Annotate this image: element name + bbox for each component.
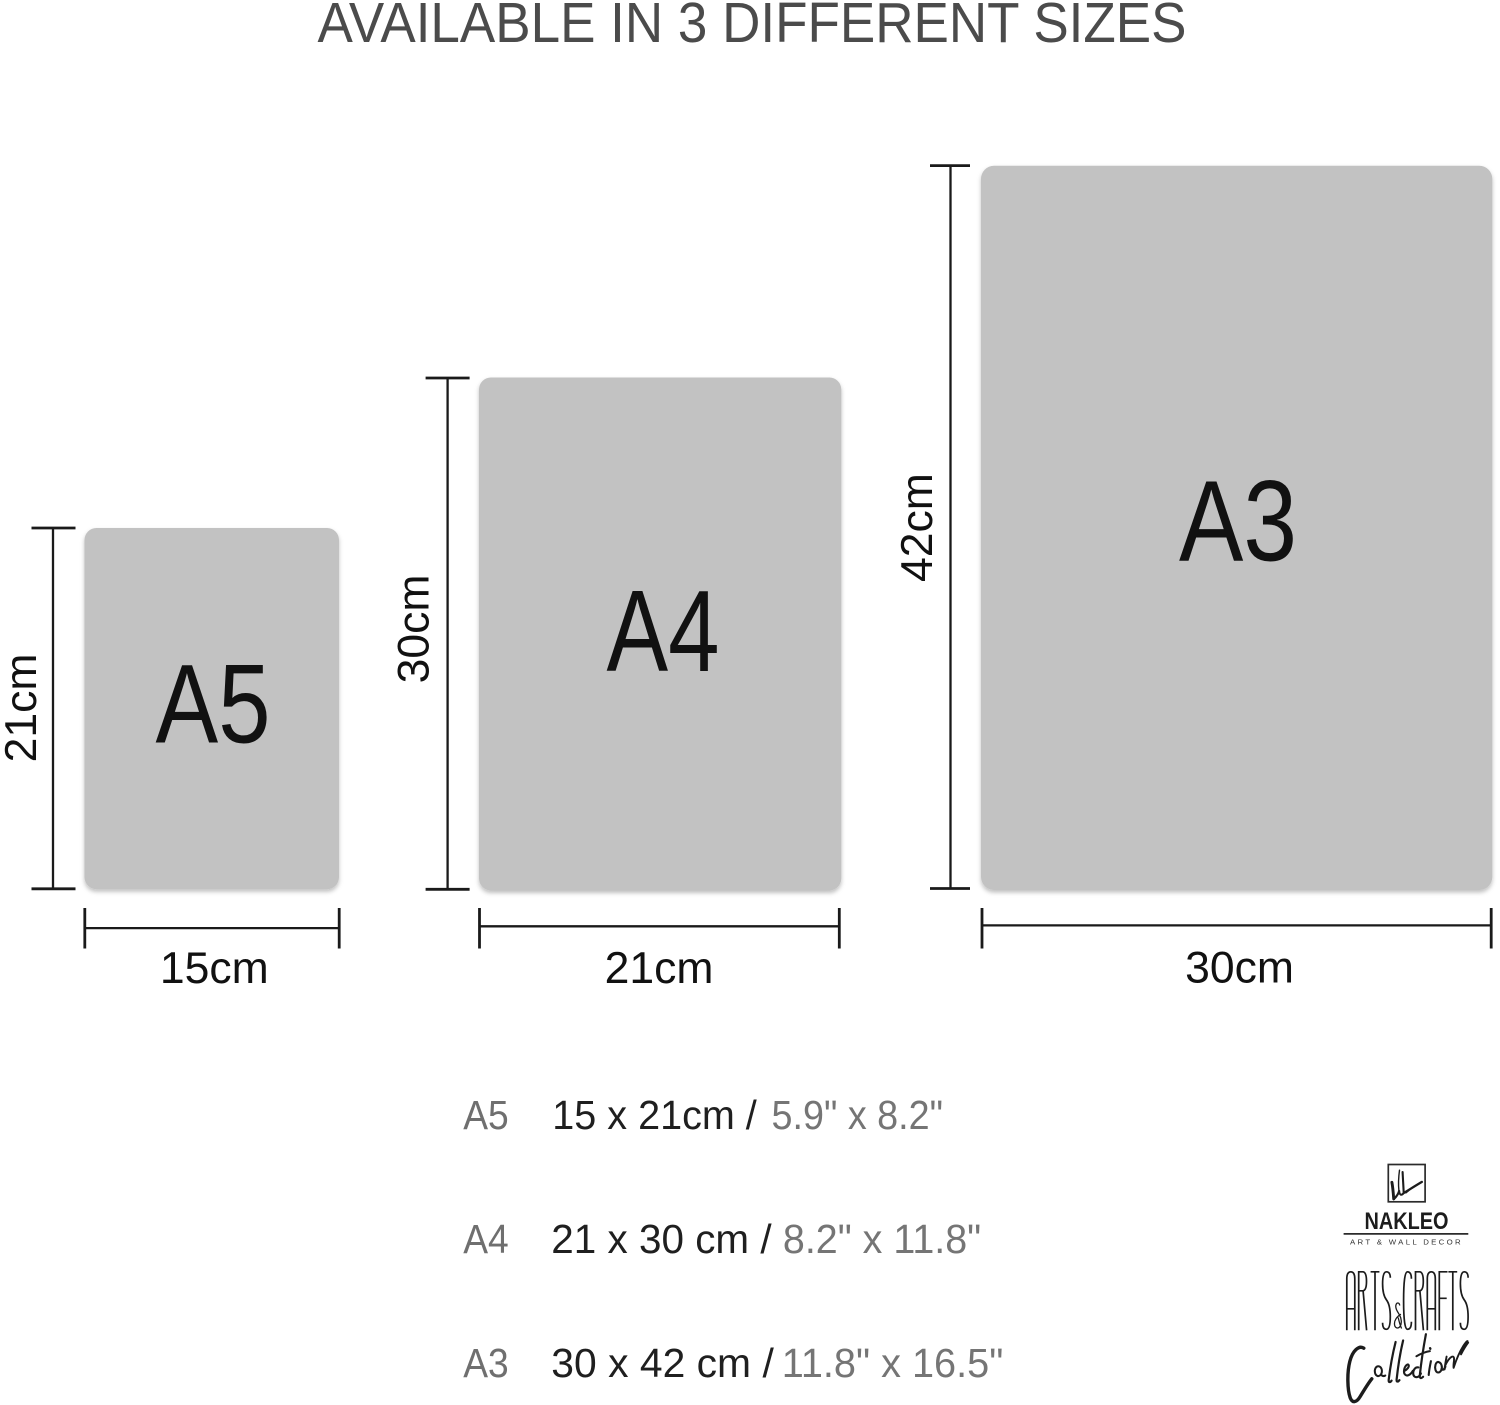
svg-text:A4: A4	[607, 566, 720, 696]
svg-text:11.8" x 16.5": 11.8" x 16.5"	[782, 1340, 1004, 1386]
svg-text:21cm: 21cm	[0, 654, 46, 763]
svg-text:15cm: 15cm	[160, 944, 269, 993]
svg-text:NAKLEO: NAKLEO	[1365, 1208, 1449, 1235]
svg-text:8.2" x 11.8": 8.2" x 11.8"	[783, 1216, 981, 1262]
svg-text:30cm: 30cm	[1185, 944, 1294, 993]
svg-text:ART & WALL DECOR: ART & WALL DECOR	[1350, 1238, 1463, 1247]
svg-text:5.9" x 8.2": 5.9" x 8.2"	[772, 1092, 944, 1138]
svg-text:30 x 42 cm /: 30 x 42 cm /	[551, 1340, 774, 1386]
svg-text:A3: A3	[463, 1340, 509, 1386]
svg-text:A5: A5	[463, 1092, 509, 1138]
svg-text:42cm: 42cm	[893, 473, 942, 582]
svg-text:21cm: 21cm	[605, 944, 714, 993]
svg-text:30cm: 30cm	[390, 575, 439, 684]
svg-text:A4: A4	[463, 1216, 509, 1262]
svg-text:A3: A3	[1179, 457, 1297, 585]
svg-text:21 x 30 cm /: 21 x 30 cm /	[551, 1216, 772, 1262]
svg-text:A5: A5	[156, 641, 271, 766]
svg-text:AVAILABLE IN 3 DIFFERENT SIZES: AVAILABLE IN 3 DIFFERENT SIZES	[318, 0, 1187, 54]
svg-text:15 x 21cm /: 15 x 21cm /	[552, 1092, 757, 1138]
